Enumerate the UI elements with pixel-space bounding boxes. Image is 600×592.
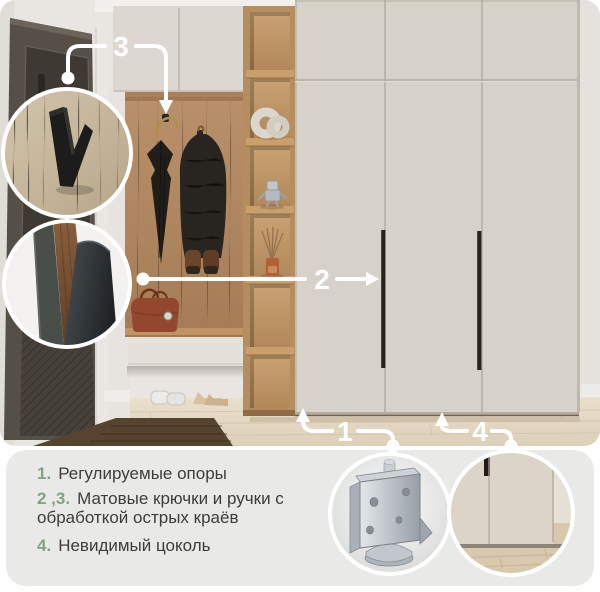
callout-4-label: 4	[472, 416, 488, 447]
feature-item-1: 1.Регулируемые опоры	[37, 464, 594, 483]
callout-3	[68, 46, 166, 100]
boots	[185, 250, 201, 272]
coat-hook-icon	[243, 108, 250, 117]
doormat	[33, 418, 233, 446]
feature-item-2-3-line2: обработкой острых краёв	[37, 508, 594, 527]
hallway-photo	[0, 0, 600, 446]
connector-dot	[62, 72, 75, 85]
upper-cabinets	[113, 6, 247, 97]
feature-number: 4.	[37, 536, 51, 555]
inset-handle-circle	[2, 219, 132, 349]
feature-item-2-3: 2 ,3.Матовые крючки и ручки с	[37, 489, 594, 508]
feature-text: обработкой острых краёв	[37, 508, 238, 527]
wardrobe	[250, 0, 580, 422]
floor	[90, 398, 600, 446]
shelf-column	[243, 6, 297, 416]
callout-2-label: 2	[314, 264, 330, 295]
feature-item-4: 4.Невидимый цоколь	[37, 536, 594, 555]
connector-dot	[137, 273, 150, 286]
hook-closeup	[49, 107, 93, 187]
features-panel: 1.Регулируемые опоры 2 ,3.Матовые крючки…	[6, 450, 594, 586]
diffuser	[261, 227, 283, 279]
bag	[131, 290, 179, 332]
handle-profile	[33, 223, 64, 349]
entrance-door	[0, 0, 108, 446]
arrow-up-icon	[296, 408, 310, 422]
bench	[125, 328, 247, 378]
invisible-plinth	[295, 412, 579, 416]
vase	[255, 112, 286, 140]
wardrobe-infographic: 3 2 1 4 1.Регулируемые опоры 2 ,3.Матовы…	[0, 0, 600, 592]
ceiling-strip	[95, 0, 305, 12]
arrow-up-icon	[435, 412, 449, 426]
shoes	[151, 391, 228, 406]
niche-wall	[108, 88, 130, 446]
intercom	[129, 215, 147, 267]
feature-text: Невидимый цоколь	[58, 536, 210, 555]
feature-number: 1.	[37, 464, 51, 483]
arrow-right-icon	[366, 272, 379, 286]
wall-background	[0, 0, 600, 446]
arrow-down-icon	[159, 100, 173, 114]
bag-pendant	[164, 312, 172, 320]
feature-text: Матовые крючки и ручки с	[77, 489, 284, 508]
boots	[203, 250, 219, 272]
inset-hook-circle	[1, 87, 135, 221]
door-handle	[38, 74, 45, 102]
callout-3-label: 3	[113, 31, 129, 62]
shelf-openings	[246, 12, 294, 408]
callout-4	[442, 426, 511, 439]
feature-text: Регулируемые опоры	[58, 464, 227, 483]
wardrobe-handle	[477, 231, 481, 370]
callout-1-label: 1	[337, 416, 353, 447]
door-mesh-panel	[20, 330, 95, 436]
coat-hook-icon	[162, 114, 169, 122]
umbrella	[147, 118, 177, 264]
handle-face	[64, 241, 118, 349]
right-wall	[580, 0, 600, 398]
coat	[180, 127, 226, 275]
wood-edge	[53, 219, 88, 349]
coat-hook-icon	[197, 130, 203, 137]
baseboard	[580, 384, 600, 397]
baseboard	[104, 390, 130, 402]
robot-figurine	[258, 181, 287, 210]
feature-number: 2 ,3.	[37, 489, 70, 508]
wardrobe-handle	[381, 230, 385, 368]
coat-niche	[125, 97, 250, 335]
callout-1	[303, 421, 393, 440]
